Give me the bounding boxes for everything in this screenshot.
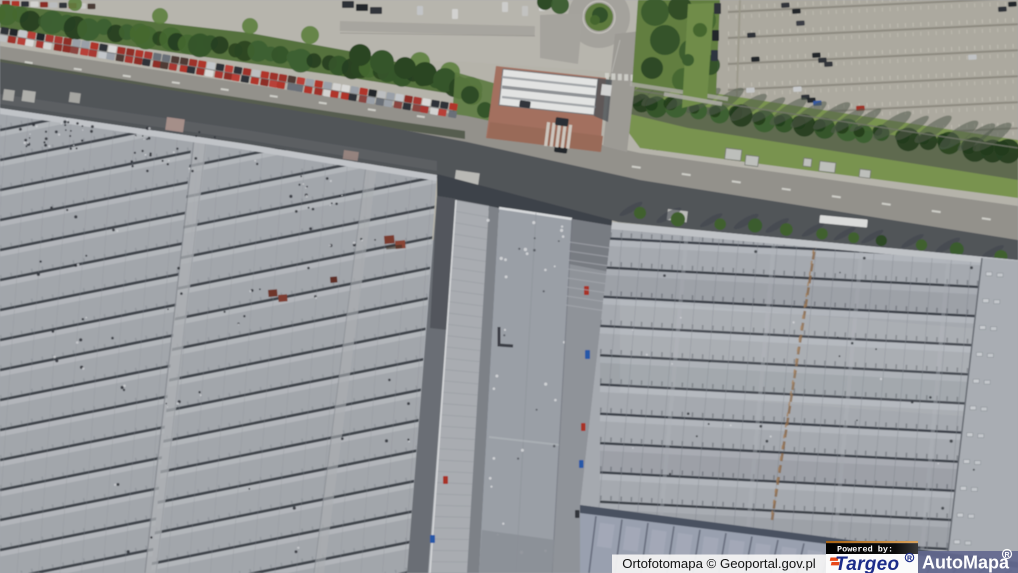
svg-text:Powered by:: Powered by: (837, 545, 893, 555)
svg-text:Targeo: Targeo (835, 554, 899, 573)
svg-text:R: R (1004, 552, 1009, 559)
svg-text:R: R (907, 555, 912, 562)
svg-text:AutoMapa: AutoMapa (922, 553, 1010, 573)
svg-text:Ortofotomapa © Geoportal.gov.p: Ortofotomapa © Geoportal.gov.pl (622, 556, 816, 571)
